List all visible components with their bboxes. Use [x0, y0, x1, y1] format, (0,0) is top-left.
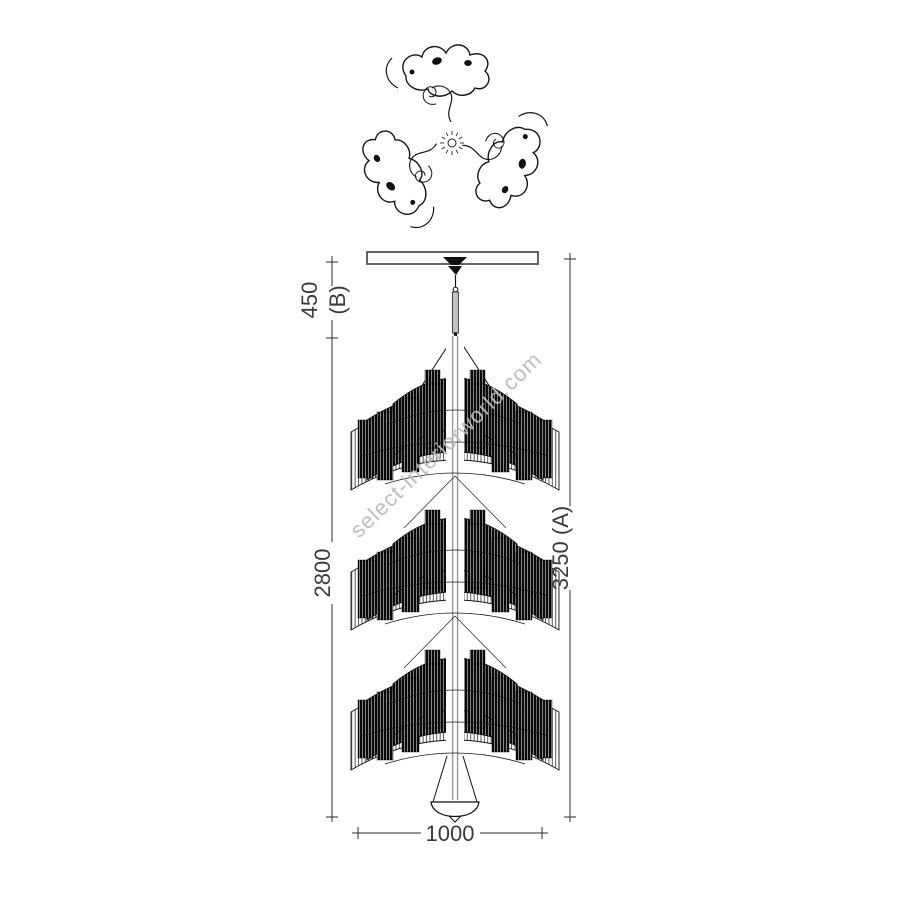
dim-width-value: 1000	[426, 821, 475, 846]
chandelier-top-view-drawing	[351, 45, 562, 238]
ornament-branch	[351, 111, 469, 238]
dim-suspension-suffix: (B)	[325, 285, 350, 314]
dim-suspension-value: 450	[297, 282, 322, 319]
technical-drawing-canvas: select-interiorworld.com 450 (B) 2800 32…	[0, 0, 900, 900]
ornament-branch	[444, 89, 562, 216]
ornament-branch	[386, 45, 489, 122]
chandelier-technical-drawing: select-interiorworld.com 450 (B) 2800 32…	[0, 0, 900, 900]
dimension-line-left	[326, 256, 338, 822]
chandelier-elevation-drawing	[351, 252, 559, 822]
dim-body-height-value: 2800	[310, 549, 335, 598]
dim-total-height-value: 3250 (A)	[548, 506, 573, 590]
central-column	[446, 336, 464, 802]
